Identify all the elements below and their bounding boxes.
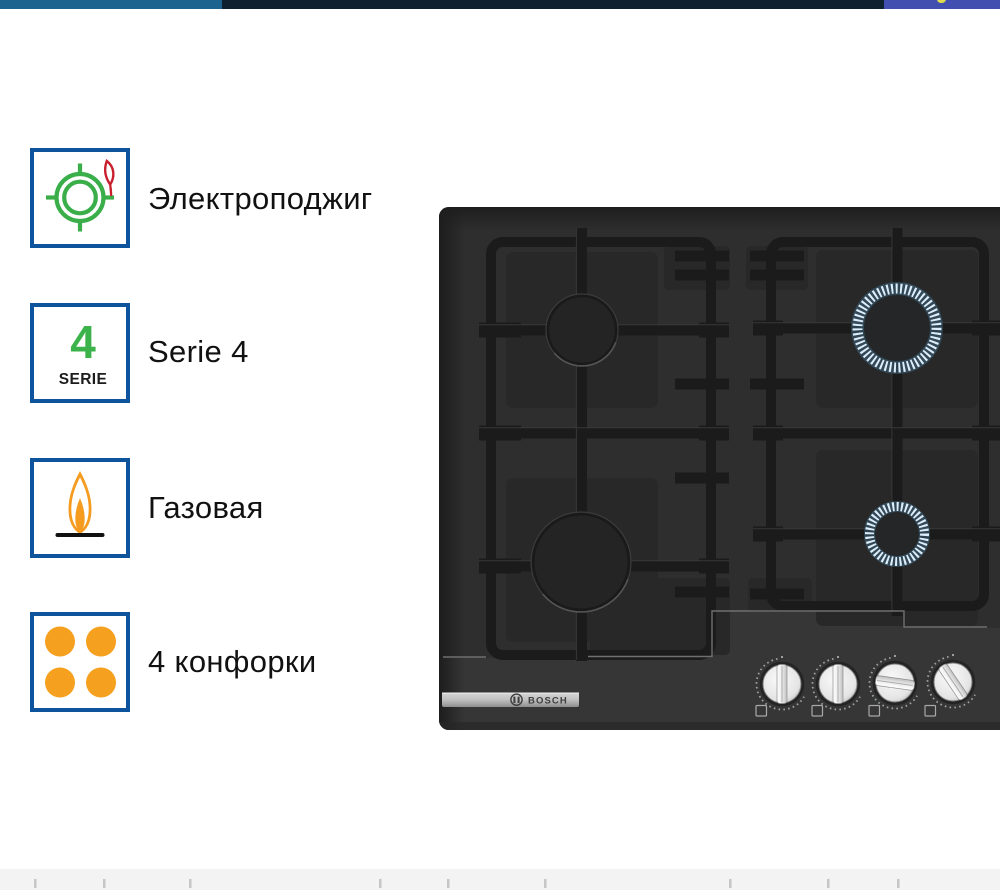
svg-text:BOSCH: BOSCH bbox=[528, 696, 568, 707]
